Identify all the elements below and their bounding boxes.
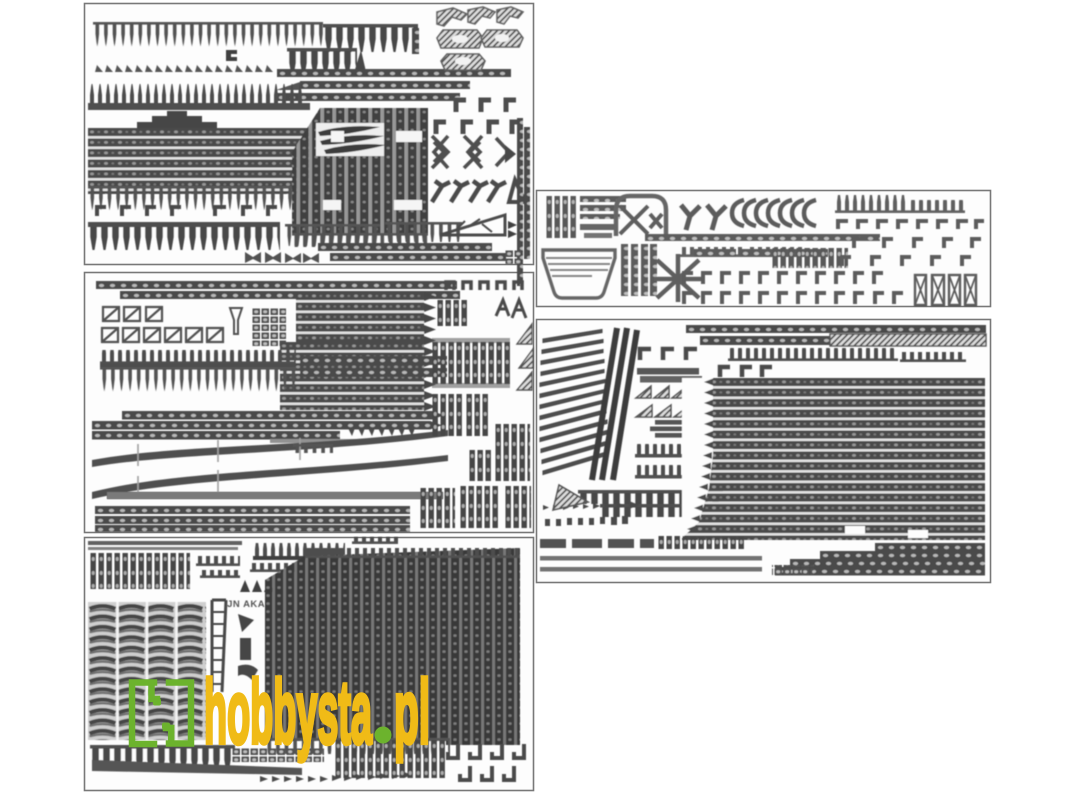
svg-text:hobbysta: hobbysta <box>204 663 372 763</box>
svg-text:pl: pl <box>394 663 430 763</box>
